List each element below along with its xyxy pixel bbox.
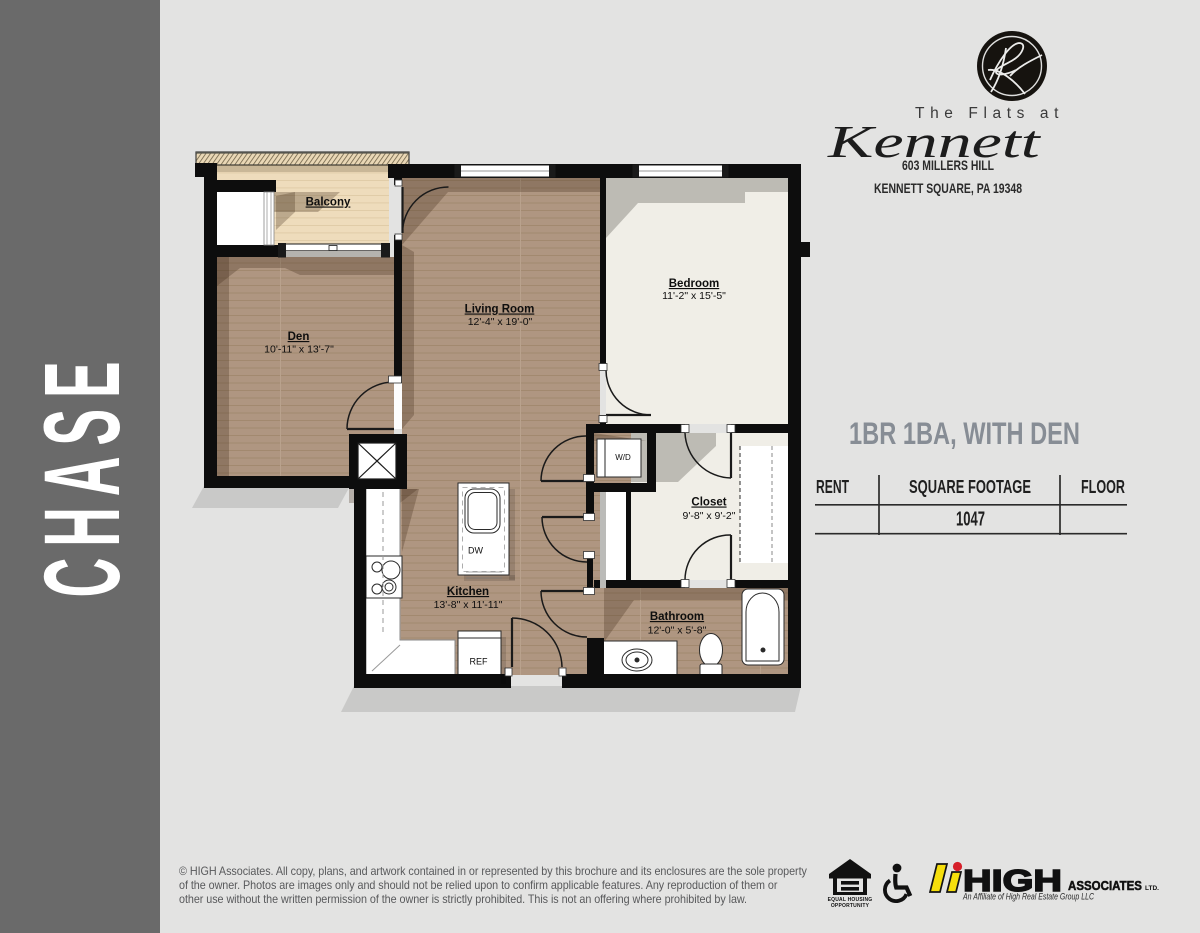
svg-text:DW: DW [468,546,483,556]
svg-text:Kitchen: Kitchen [447,586,489,598]
svg-text:9'-8" x 9'-2": 9'-8" x 9'-2" [683,510,736,522]
svg-text:RENT: RENT [816,477,849,497]
svg-text:12'-0" x 5'-8": 12'-0" x 5'-8" [648,625,707,637]
svg-text:W/D: W/D [615,453,631,462]
svg-text:An Affiliate of High Real Esta: An Affiliate of High Real Estate Group L… [962,892,1094,902]
svg-text:SQUARE FOOTAGE: SQUARE FOOTAGE [909,477,1031,497]
svg-text:1047: 1047 [956,508,985,530]
svg-text:11'-2" x 15'-5": 11'-2" x 15'-5" [662,290,726,302]
svg-text:603 MILLERS HILL: 603 MILLERS HILL [902,157,994,173]
svg-text:LTD.: LTD. [1145,885,1159,892]
svg-text:Bathroom: Bathroom [650,611,704,623]
svg-text:REF: REF [470,657,489,667]
svg-text:Den: Den [288,331,310,343]
svg-text:10'-11" x 13'-7": 10'-11" x 13'-7" [264,344,334,356]
svg-text:13'-8" x 11'-11": 13'-8" x 11'-11" [434,599,503,611]
svg-text:OPPORTUNITY: OPPORTUNITY [831,903,870,909]
svg-text:12'-4" x 19'-0": 12'-4" x 19'-0" [468,316,533,328]
svg-text:KENNETT SQUARE, PA 19348: KENNETT SQUARE, PA 19348 [874,180,1022,196]
svg-text:FLOOR: FLOOR [1081,477,1125,497]
svg-text:1BR 1BA, WITH DEN: 1BR 1BA, WITH DEN [849,415,1080,451]
svg-text:Closet: Closet [691,497,726,509]
svg-text:Balcony: Balcony [306,197,351,209]
svg-text:Bedroom: Bedroom [669,278,719,290]
svg-text:Living Room: Living Room [465,304,535,316]
